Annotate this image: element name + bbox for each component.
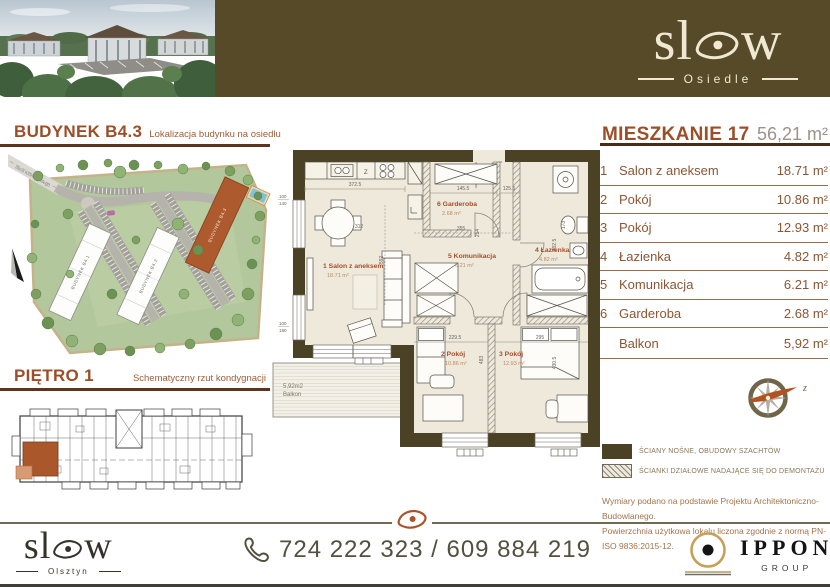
- aerial-photo: [0, 0, 215, 97]
- phone-contact: 724 222 323 / 609 884 219: [243, 536, 591, 564]
- svg-text:100: 100: [279, 321, 287, 326]
- room-no: 1: [600, 163, 619, 178]
- room-area: 12.93 m²: [777, 220, 828, 235]
- svg-text:483: 483: [479, 356, 485, 365]
- svg-text:173: 173: [561, 221, 567, 230]
- svg-text:3 Pokój: 3 Pokój: [499, 351, 523, 358]
- svg-text:1 Salon z aneksem: 1 Salon z aneksem: [323, 263, 383, 270]
- phone-icon: [243, 536, 271, 564]
- footer-logo-word: sl w: [24, 527, 113, 565]
- compass-z-label: z: [802, 383, 807, 394]
- legend-solid-swatch: [602, 444, 632, 459]
- compass-icon: z: [735, 370, 825, 430]
- note-line-1: Wymiary podano na podstawie Projektu Arc…: [602, 494, 830, 524]
- svg-text:180: 180: [279, 328, 287, 333]
- window-dimension-labels: 100 140 100 180: [278, 194, 289, 333]
- schematic-balcony-highlight: [16, 466, 32, 479]
- footer-olsztyn-label: Olsztyn: [48, 567, 89, 576]
- partner-text: IPPON GROUP: [740, 535, 830, 573]
- svg-text:372.5: 372.5: [349, 182, 362, 188]
- building-title: BUDYNEK B4.3: [14, 122, 142, 142]
- brand-logo: slow sl w Osiedle: [628, 13, 808, 86]
- eye-icon: [694, 26, 740, 64]
- floor-title: PIĘTRO 1: [14, 366, 94, 386]
- rug: [353, 275, 377, 309]
- partner-sub: GROUP: [761, 563, 812, 573]
- ippon-circle-icon: [683, 527, 733, 581]
- svg-text:2 Pokój: 2 Pokój: [441, 351, 465, 358]
- partner-logo: IPPON GROUP: [683, 527, 830, 581]
- dash-left: [638, 78, 674, 80]
- svg-text:140: 140: [279, 201, 287, 206]
- room-list: 1 Salon z aneksem 18.71 m² 2 Pokój 10.86…: [600, 157, 828, 359]
- svg-text:4.82 m²: 4.82 m²: [539, 257, 558, 263]
- room-area: 4.82 m²: [784, 249, 828, 264]
- room-name: Komunikacja: [619, 277, 784, 292]
- kitchen-mark: Z: [364, 170, 368, 176]
- site-map: ulica Klonowskiego BUDYNEK B4.1: [8, 152, 280, 364]
- room-name: Balkon: [619, 336, 784, 351]
- room-row-1: 1 Salon z aneksem 18.71 m²: [600, 157, 828, 186]
- svg-text:229.5: 229.5: [449, 335, 462, 341]
- legend-hatch-row: ŚCIANKI DZIAŁOWE NADAJĄCE SIĘ DO DEMONTA…: [602, 464, 828, 478]
- room-name: Pokój: [619, 192, 777, 207]
- desk: [423, 395, 463, 421]
- footer-divider-right: [432, 522, 830, 524]
- svg-text:10.86 m²: 10.86 m²: [445, 361, 467, 367]
- building-rule: [0, 144, 270, 147]
- room-row-5: 5 Komunikacja 6.21 m²: [600, 271, 828, 300]
- brand-osiedle-label: Osiedle: [684, 72, 753, 86]
- footer-logo: sl w Olsztyn: [16, 527, 121, 576]
- chair: [546, 400, 558, 418]
- brand-logo-sub: Osiedle: [638, 72, 799, 86]
- room-row-3: 3 Pokój 12.93 m²: [600, 214, 828, 243]
- dash-left: [16, 571, 38, 573]
- room-row-6: 6 Garderoba 2.68 m²: [600, 300, 828, 329]
- room-area: 18.71 m²: [777, 163, 828, 178]
- room-no: 5: [600, 277, 619, 292]
- apartment-total-area: 56,21 m²: [757, 124, 828, 145]
- floor-heading: PIĘTRO 1 Schematyczny rzut kondygnacji: [14, 366, 266, 386]
- sofa: [382, 251, 410, 327]
- svg-text:254: 254: [475, 229, 481, 238]
- floor-rule: [0, 388, 270, 391]
- svg-text:4 Łazienka: 4 Łazienka: [535, 247, 570, 254]
- legend-solid-label: ŚCIANY NOŚNE, OBUDOWY SZACHTÓW: [639, 448, 780, 455]
- map-car: [107, 211, 114, 216]
- desk: [557, 395, 588, 422]
- balcony-row: Balkon 5,92 m²: [600, 328, 828, 359]
- footer-divider-left: [0, 522, 392, 524]
- floor-subtitle: Schematyczny rzut kondygnacji: [133, 373, 266, 384]
- floor-schematic: [10, 396, 265, 508]
- svg-text:2.68 m²: 2.68 m²: [442, 211, 461, 217]
- building-subtitle: Lokalizacja budynku na osiedlu: [149, 129, 281, 140]
- svg-text:355: 355: [457, 226, 466, 232]
- legend-hatch-swatch: [602, 464, 632, 478]
- room-name: Garderoba: [619, 306, 784, 321]
- room-no: 3: [600, 220, 619, 235]
- svg-text:5,92m2: 5,92m2: [283, 384, 304, 390]
- svg-text:12.93 m²: 12.93 m²: [503, 361, 525, 367]
- room-no: 4: [600, 249, 619, 264]
- room-no: 2: [600, 192, 619, 207]
- room-name: Łazienka: [619, 249, 784, 264]
- logo-w: w: [84, 527, 112, 565]
- building-heading: BUDYNEK B4.3 Lokalizacja budynku na osie…: [14, 122, 281, 142]
- room-row-4: 4 Łazienka 4.82 m²: [600, 243, 828, 272]
- partner-name: IPPON: [740, 535, 830, 561]
- logo-sl: sl: [654, 13, 693, 69]
- room-area: 6.21 m²: [784, 277, 828, 292]
- footer-logo-sub: Olsztyn: [16, 567, 121, 576]
- apartment-rule: [600, 143, 830, 146]
- legend: ŚCIANY NOŚNE, OBUDOWY SZACHTÓW ŚCIANKI D…: [602, 444, 828, 483]
- dash-right: [99, 571, 121, 573]
- room-area: 10.86 m²: [777, 192, 828, 207]
- svg-text:295: 295: [536, 335, 545, 341]
- svg-text:18.71 m²: 18.71 m²: [327, 273, 349, 279]
- room-name: Salon z aneksem: [619, 163, 777, 178]
- room-area: 2.68 m²: [784, 306, 828, 321]
- room-no: 6: [600, 306, 619, 321]
- svg-text:312: 312: [355, 224, 364, 230]
- svg-text:5 Komunikacja: 5 Komunikacja: [448, 253, 496, 260]
- svg-text:6.21 m²: 6.21 m²: [455, 263, 474, 269]
- north-arrow: [11, 248, 24, 282]
- legend-solid-row: ŚCIANY NOŚNE, OBUDOWY SZACHTÓW: [602, 444, 828, 459]
- room-row-2: 2 Pokój 10.86 m²: [600, 186, 828, 215]
- svg-text:100: 100: [279, 194, 287, 199]
- brand-logo-word: slow sl w: [654, 13, 783, 69]
- tv-cabinet: [307, 258, 313, 310]
- apartment-floorplan: 5,92m2 Balkon: [265, 145, 605, 480]
- room-area: 5,92 m²: [784, 336, 828, 351]
- svg-text:430.5: 430.5: [552, 357, 558, 370]
- room-name: Pokój: [619, 220, 777, 235]
- legend-hatch-label: ŚCIANKI DZIAŁOWE NADAJĄCE SIĘ DO DEMONTA…: [639, 468, 825, 475]
- logo-w: w: [741, 13, 782, 69]
- chair: [430, 375, 454, 388]
- dash-right: [762, 78, 798, 80]
- svg-text:145.5: 145.5: [457, 186, 470, 192]
- svg-text:6 Garderoba: 6 Garderoba: [437, 201, 477, 208]
- footer-eye-icon: [396, 507, 428, 531]
- logo-sl: sl: [24, 527, 51, 565]
- eye-icon: [52, 536, 83, 562]
- plan-balcony: 5,92m2 Balkon: [273, 363, 401, 417]
- svg-text:125.5: 125.5: [503, 186, 516, 192]
- svg-text:Balkon: Balkon: [283, 392, 301, 398]
- phone-numbers: 724 222 323 / 609 884 219: [279, 536, 591, 564]
- brochure-page: slow sl w Osiedle BUDYNEK B4.3 Lokalizac…: [0, 0, 830, 587]
- toilet-tank: [577, 217, 588, 233]
- sink-icon: [331, 165, 353, 177]
